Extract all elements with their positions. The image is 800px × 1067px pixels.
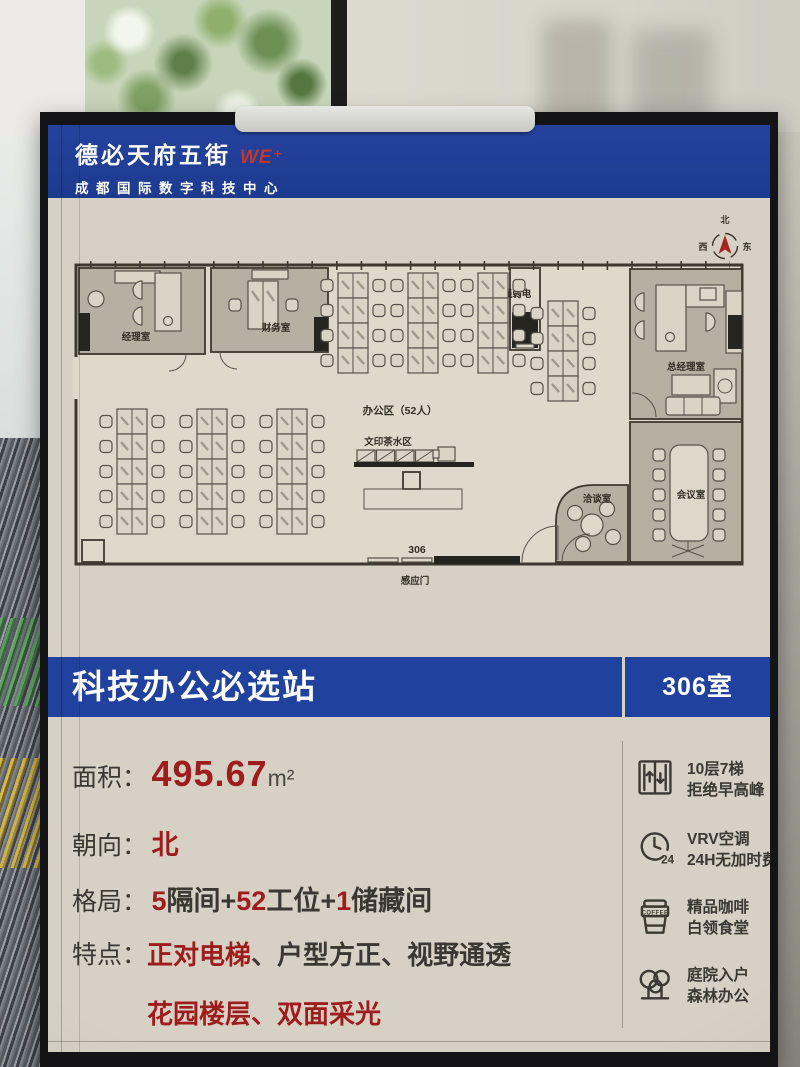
amenity-line: 24H无加时费 [687, 851, 770, 872]
poster-bottom-seam [48, 1041, 770, 1042]
carpet-yellow-stripe [0, 758, 44, 868]
elevator-icon [636, 759, 674, 797]
clock-24-badge: 24 [661, 852, 674, 866]
spec-layout-part: 52 [236, 886, 266, 916]
spec-layout-part: 5 [151, 886, 166, 916]
amenity-line: VRV空调 [687, 830, 770, 851]
spec-layout-part: 储藏间 [351, 886, 432, 916]
brand-subtitle: 成都国际数字科技中心 [75, 177, 770, 197]
carpet-green-stripe [0, 618, 44, 706]
room-negotiation-label: 洽谈室 [583, 493, 612, 505]
room-finance-label: 财务室 [261, 322, 291, 334]
spec-layout: 格局： 5隔间+52工位+1储藏间 [72, 879, 432, 918]
brand-name: 德必天府五街 [75, 136, 231, 170]
amenity-line: 庭院入户 [687, 966, 749, 987]
spec-separator [622, 741, 623, 1028]
title-banner: 科技办公必选站 306室 [48, 657, 770, 717]
floorplan-drawing: 经理室 财务室 [70, 257, 748, 595]
poster-header: 德必天府五街 WE⁺ 成都国际数字科技中心 [48, 125, 770, 198]
coffee-cup-icon: COFFEE [636, 897, 674, 935]
room-meeting: 会议室 [630, 422, 742, 562]
spec-area-value: 495.67 [151, 753, 267, 794]
photo-of-office-floorplan-poster: 德必天府五街 WE⁺ 成都国际数字科技中心 北 西 东 南 [0, 0, 800, 1067]
spec-area: 面积： 495.67m² [72, 753, 294, 795]
spec-area-unit: m² [268, 765, 295, 791]
poster-surface: 德必天府五街 WE⁺ 成都国际数字科技中心 北 西 东 南 [48, 125, 770, 1052]
sensor-door-label: 感应门 [401, 575, 430, 587]
brand-we-logo: WE⁺ [240, 146, 284, 169]
amenity-coffee: COFFEE 精品咖啡 白领食堂 [636, 897, 749, 940]
workstations-bottom [100, 409, 324, 534]
mounting-clip [235, 106, 535, 132]
spec-orientation-label: 朝向： [72, 832, 147, 860]
print-tea-label: 文印茶水区 [363, 436, 412, 448]
amenity-line: 拒绝早高峰 [687, 781, 765, 802]
amenity-line: 精品咖啡 [687, 898, 749, 919]
room-meeting-label: 会议室 [677, 489, 706, 501]
amenity-garden: 庭院入户 森林办公 [636, 965, 749, 1008]
spec-layout-part: 1 [336, 886, 351, 916]
spec-area-label: 面积： [72, 764, 147, 792]
spec-layout-part: 隔间+ [167, 886, 237, 916]
trees-icon [636, 965, 674, 1003]
spec-orientation-value: 北 [151, 830, 178, 860]
wall-left-lower [0, 135, 42, 440]
spec-section: 面积： 495.67m² 朝向： 北 格局： 5隔间+52工位+1储藏间 特点：… [48, 729, 770, 1052]
spec-layout-part: 工位+ [266, 886, 336, 916]
amenity-line: 10层7梯 [687, 760, 765, 781]
compass-north-label: 北 [720, 214, 729, 225]
compass-east-label: 东 [742, 241, 751, 252]
poster-board: 德必天府五街 WE⁺ 成都国际数字科技中心 北 西 东 南 [40, 112, 778, 1067]
amenity-line: 白领食堂 [687, 919, 749, 940]
room-gm-label: 总经理室 [667, 361, 706, 373]
coffee-badge: COFFEE [642, 910, 669, 916]
striped-carpet [0, 438, 44, 1067]
office-area-label: 办公区（52人） [363, 404, 438, 417]
spec-orientation: 朝向： 北 [72, 823, 178, 862]
spec-features-label: 特点： [72, 935, 147, 1031]
banner-room-number: 306室 [625, 657, 770, 717]
room-manager-label: 经理室 [122, 331, 151, 343]
spec-features-line1: 正对电梯、户型方正、视野通透 [147, 935, 511, 972]
spec-layout-label: 格局： [72, 888, 147, 916]
clock-24h-icon: 24 [636, 829, 674, 867]
amenity-elevator: 10层7梯 拒绝早高峰 [636, 759, 765, 802]
amenity-aircon: 24 VRV空调 24H无加时费 [636, 829, 770, 872]
spec-features-line2: 花园楼层、双面采光 [147, 994, 511, 1031]
room-gm: 总经理室 [630, 269, 742, 419]
compass-west-label: 西 [698, 242, 707, 252]
left-wall-opening [73, 357, 79, 399]
room-negotiation: 洽谈室 [556, 485, 628, 562]
wall-right-edge [778, 132, 800, 1067]
banner-title: 科技办公必选站 [72, 657, 317, 717]
compass-needle-icon [719, 235, 732, 254]
room-number-label: 306 [408, 544, 426, 556]
spec-features: 特点： 正对电梯、户型方正、视野通透 花园楼层、双面采光 [72, 935, 511, 1031]
amenity-line: 森林办公 [687, 987, 749, 1008]
